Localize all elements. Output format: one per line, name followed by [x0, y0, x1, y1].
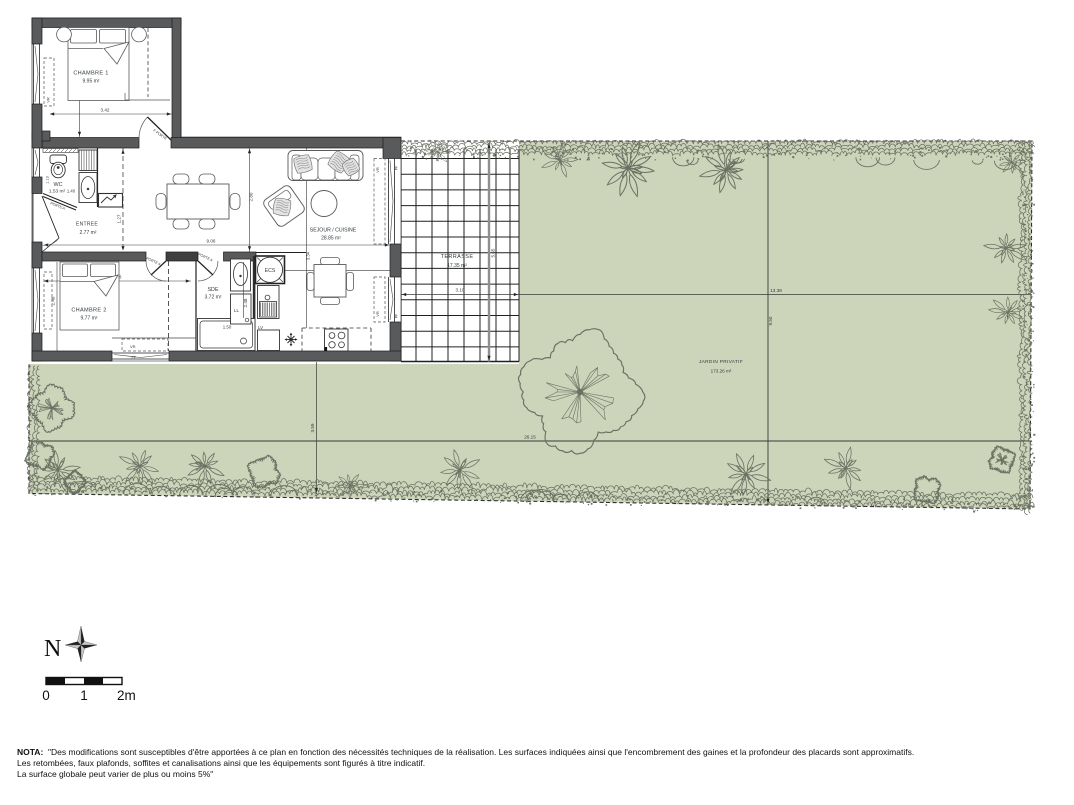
- svg-text:2.48: 2.48: [51, 296, 56, 305]
- svg-text:VR: VR: [375, 167, 380, 173]
- svg-text:LV: LV: [258, 325, 263, 330]
- svg-text:9.95 m²: 9.95 m²: [83, 79, 100, 85]
- svg-text:N: N: [44, 636, 61, 662]
- svg-text:2.48: 2.48: [243, 298, 248, 307]
- svg-text:VR: VR: [375, 311, 380, 317]
- svg-text:9.77 m²: 9.77 m²: [81, 316, 98, 322]
- svg-text:1.40: 1.40: [67, 189, 76, 194]
- svg-text:2m: 2m: [117, 688, 136, 703]
- svg-text:PF: PF: [395, 313, 399, 318]
- svg-text:PF: PF: [132, 356, 137, 360]
- svg-text:3.42: 3.42: [101, 108, 110, 113]
- svg-text:5.65: 5.65: [491, 248, 496, 257]
- svg-text:PF: PF: [395, 165, 399, 170]
- svg-text:ECS: ECS: [265, 268, 276, 274]
- svg-text:2.80: 2.80: [249, 192, 254, 201]
- svg-text:La surface globale peut varier: La surface globale peut varier de plus o…: [17, 769, 213, 779]
- svg-text:26.15: 26.15: [524, 435, 536, 440]
- svg-text:SEJOUR / CUISINE: SEJOUR / CUISINE: [310, 228, 357, 234]
- svg-text:CHAMBRE 1: CHAMBRE 1: [73, 71, 108, 77]
- svg-text:VR: VR: [130, 344, 136, 349]
- svg-text:1.27: 1.27: [117, 214, 122, 223]
- svg-text:173.26 m²: 173.26 m²: [711, 369, 732, 374]
- svg-text:TERRASSE: TERRASSE: [441, 254, 474, 260]
- svg-text:WC: WC: [54, 182, 63, 188]
- svg-text:0: 0: [42, 688, 50, 703]
- svg-text:1: 1: [80, 688, 88, 703]
- svg-text:28.85 m²: 28.85 m²: [321, 236, 341, 242]
- svg-text:1.13: 1.13: [46, 176, 50, 183]
- svg-text:13.38: 13.38: [770, 288, 782, 293]
- svg-text:CHAMBRE 2: CHAMBRE 2: [71, 308, 106, 314]
- svg-text:1.53 m²: 1.53 m²: [49, 189, 66, 195]
- svg-text:SDE: SDE: [207, 287, 218, 293]
- svg-text:Les retombées, faux plafonds,: Les retombées, faux plafonds, soffites e…: [17, 758, 425, 768]
- svg-text:9.06: 9.06: [207, 239, 216, 244]
- svg-text:2.77 m²: 2.77 m²: [80, 230, 97, 236]
- svg-text:JARDIN PRIVATIF: JARDIN PRIVATIF: [699, 359, 743, 365]
- svg-text:3.34: 3.34: [306, 251, 311, 260]
- svg-text:VR: VR: [46, 97, 51, 103]
- svg-text:17.35 m²: 17.35 m²: [447, 263, 467, 269]
- svg-text:3.72 m²: 3.72 m²: [205, 295, 222, 301]
- svg-text:9.50: 9.50: [768, 316, 773, 325]
- svg-text:3.59: 3.59: [310, 423, 315, 432]
- svg-text:LL: LL: [234, 308, 239, 313]
- svg-text:3.10: 3.10: [456, 288, 465, 293]
- svg-text:NOTA: "Des modifications sont: NOTA: "Des modifications sont susceptibl…: [17, 747, 914, 757]
- svg-text:ENTREE: ENTREE: [76, 222, 98, 228]
- svg-text:1.50: 1.50: [223, 325, 232, 330]
